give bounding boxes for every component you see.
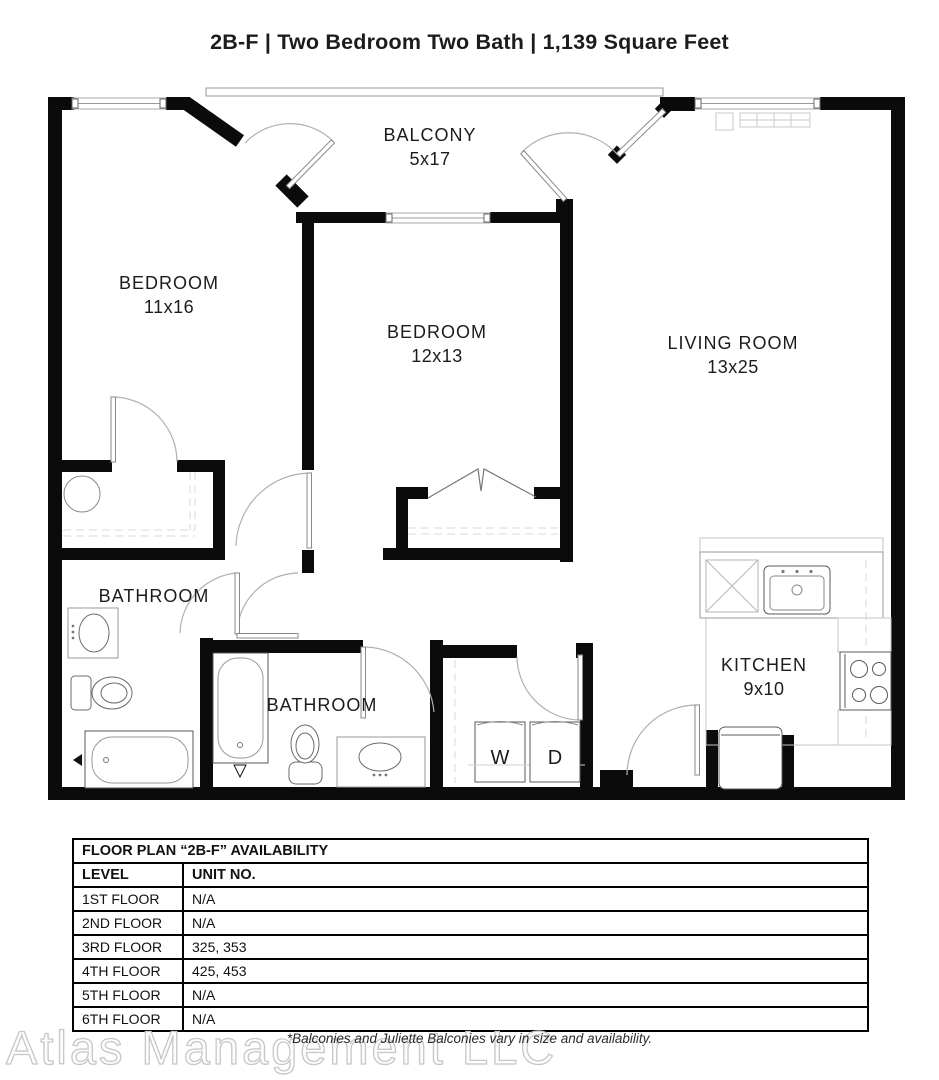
door-arc: [113, 397, 177, 462]
bathroom2-label: BATHROOM: [267, 695, 378, 715]
footnote: *Balconies and Juliette Balconies vary i…: [0, 1031, 939, 1046]
pantry-icon: [706, 560, 758, 612]
table-row: 3RD FLOOR 325, 353: [73, 935, 868, 959]
door-leaf: [111, 397, 116, 462]
door-arc: [517, 657, 578, 720]
door-arc: [237, 573, 298, 634]
door-leaf: [578, 655, 583, 720]
table-row: 2ND FLOOR N/A: [73, 911, 868, 935]
living-room-dims: 13x25: [707, 357, 759, 377]
door-leaves: [111, 140, 700, 775]
sliding-door-icon: [616, 109, 666, 157]
bifold-doors-icon: [428, 469, 536, 498]
floor-plan-page: 2B-F | Two Bedroom Two Bath | 1,139 Squa…: [0, 0, 939, 1080]
availability-table: FLOOR PLAN “2B-F” AVAILABILITY LEVEL UNI…: [72, 838, 869, 1032]
door-leaf: [695, 705, 700, 775]
bedroom1-dims: 11x16: [144, 297, 194, 317]
table-header-row: LEVEL UNIT NO.: [73, 863, 868, 887]
stove-icon: [840, 652, 891, 710]
balcony-label: BALCONY: [383, 125, 476, 145]
kitchen-sink-icon: [764, 566, 830, 614]
door-arc: [627, 705, 697, 775]
table-title-row: FLOOR PLAN “2B-F” AVAILABILITY: [73, 839, 868, 863]
watermark: Atlas Management LLC: [6, 1020, 557, 1075]
door-leaf: [235, 573, 240, 634]
living-room-label: LIVING ROOM: [667, 333, 798, 353]
bedroom2-label: BEDROOM: [387, 322, 487, 342]
bathroom2-bathtub-icon: [213, 653, 268, 777]
balcony-railing-icon: [206, 88, 663, 96]
level-cell: 2ND FLOOR: [73, 911, 183, 935]
window-icon: [695, 98, 820, 109]
unit-cell: N/A: [183, 983, 868, 1007]
level-cell: 3RD FLOOR: [73, 935, 183, 959]
washer-label: W: [491, 747, 510, 769]
table-title: FLOOR PLAN “2B-F” AVAILABILITY: [73, 839, 868, 863]
bedroom2-dims: 12x13: [411, 346, 463, 366]
bathroom2-toilet-icon: [289, 725, 322, 784]
unit-cell: 425, 453: [183, 959, 868, 983]
level-cell: 5TH FLOOR: [73, 983, 183, 1007]
door-arc: [245, 124, 333, 143]
bedroom1-label: BEDROOM: [119, 273, 219, 293]
unit-cell: 325, 353: [183, 935, 868, 959]
table-row: 4TH FLOOR 425, 453: [73, 959, 868, 983]
door-arc: [236, 473, 311, 546]
window-icon: [72, 98, 166, 109]
col-header-unit-no: UNIT NO.: [183, 863, 868, 887]
unit-cell: N/A: [183, 887, 868, 911]
door-arc: [522, 133, 618, 155]
door-leaf: [286, 140, 334, 189]
door-leaf: [307, 473, 312, 548]
kitchen-label: KITCHEN: [721, 655, 807, 675]
door-leaf: [521, 151, 567, 202]
baseboard-heater-icon: [716, 113, 810, 130]
bathroom1-bathtub-icon: [73, 731, 193, 788]
dryer-label: D: [548, 747, 562, 769]
bathroom1-label: BATHROOM: [99, 586, 210, 606]
bathroom1-toilet-icon: [71, 676, 132, 710]
level-cell: 1ST FLOOR: [73, 887, 183, 911]
level-cell: 4TH FLOOR: [73, 959, 183, 983]
kitchen-counters: [700, 538, 891, 745]
bathroom1-sink-icon: [68, 608, 118, 658]
bathroom2-sink-icon: [337, 737, 425, 787]
table-row: 5TH FLOOR N/A: [73, 983, 868, 1007]
kitchen-dims: 9x10: [743, 679, 784, 699]
unit-cell: N/A: [183, 911, 868, 935]
table-row: 1ST FLOOR N/A: [73, 887, 868, 911]
col-header-level: LEVEL: [73, 863, 183, 887]
floor-plan-drawing: BALCONY 5x17 BEDROOM 11x16 BEDROOM 12x13…: [0, 0, 939, 830]
balcony-dims: 5x17: [409, 149, 450, 169]
refrigerator-icon: [719, 727, 782, 789]
window-icon: [386, 213, 490, 223]
door-leaf: [237, 634, 298, 639]
closet-circle-icon: [64, 476, 100, 512]
